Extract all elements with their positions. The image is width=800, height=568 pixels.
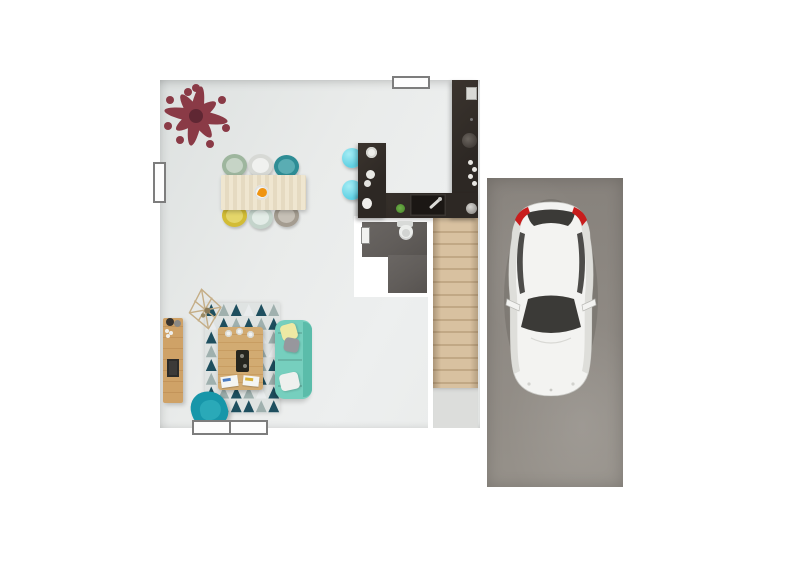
coral-plant bbox=[160, 82, 234, 152]
decor-bowl bbox=[166, 318, 174, 326]
stair-shading bbox=[433, 218, 478, 388]
magazine bbox=[243, 375, 260, 387]
candle bbox=[236, 328, 243, 335]
garage bbox=[487, 178, 623, 487]
window-bottom bbox=[192, 420, 268, 435]
magazine-print bbox=[245, 377, 253, 381]
radiator bbox=[361, 227, 370, 244]
kitchen-dish bbox=[366, 170, 375, 179]
headlight-dot bbox=[571, 382, 574, 385]
kitchen-egg bbox=[468, 160, 473, 165]
headlight-dot bbox=[527, 382, 530, 385]
coral-tip bbox=[222, 124, 230, 132]
chair-sage bbox=[222, 154, 247, 177]
herb-plant bbox=[396, 204, 405, 213]
coral-tip bbox=[192, 84, 200, 92]
emblem-dot bbox=[550, 389, 553, 392]
magazine-print bbox=[223, 378, 231, 382]
coral-tip bbox=[218, 96, 226, 104]
kitchen-egg bbox=[472, 181, 477, 186]
candle bbox=[225, 330, 232, 337]
chair-white bbox=[248, 154, 273, 177]
coral-tip bbox=[176, 136, 184, 144]
bottle-cap bbox=[240, 354, 244, 358]
decor-flowers bbox=[166, 334, 170, 338]
car-top-view bbox=[495, 196, 605, 400]
window-left bbox=[153, 162, 166, 203]
coral-tip bbox=[206, 140, 214, 148]
car-windshield bbox=[521, 296, 581, 334]
coral-tip bbox=[164, 122, 172, 130]
window-pane bbox=[231, 422, 266, 433]
counter-knob bbox=[470, 118, 473, 121]
sofa-backrest bbox=[303, 322, 312, 397]
pillow-gray bbox=[283, 337, 300, 353]
magazine bbox=[220, 375, 238, 388]
kitchen-jar bbox=[362, 198, 372, 209]
kitchen-bowl bbox=[462, 133, 477, 148]
kitchen-egg bbox=[472, 167, 477, 172]
tv bbox=[167, 359, 179, 377]
coral-tip bbox=[166, 96, 174, 104]
kitchen-pot bbox=[466, 203, 477, 214]
window-pane bbox=[194, 422, 231, 433]
decor-bowl bbox=[174, 320, 181, 327]
staircase bbox=[433, 218, 478, 388]
coral-tip bbox=[184, 88, 192, 96]
kitchen-cutting-board bbox=[466, 87, 477, 100]
candle bbox=[247, 331, 254, 338]
kitchen-dish bbox=[364, 180, 371, 187]
kitchen-faucet-base bbox=[438, 197, 442, 201]
kitchen-plate bbox=[366, 147, 377, 158]
kitchen-egg bbox=[468, 174, 473, 179]
toilet-seat bbox=[402, 229, 410, 237]
bathroom-floor bbox=[388, 255, 427, 293]
floor-plan-scene bbox=[0, 0, 800, 568]
window-top bbox=[392, 76, 430, 89]
stair-landing bbox=[433, 388, 478, 428]
bathroom-floor bbox=[362, 222, 427, 257]
sofa-seam bbox=[278, 359, 302, 361]
coral-center bbox=[189, 109, 203, 123]
bottle-cap bbox=[243, 364, 247, 368]
